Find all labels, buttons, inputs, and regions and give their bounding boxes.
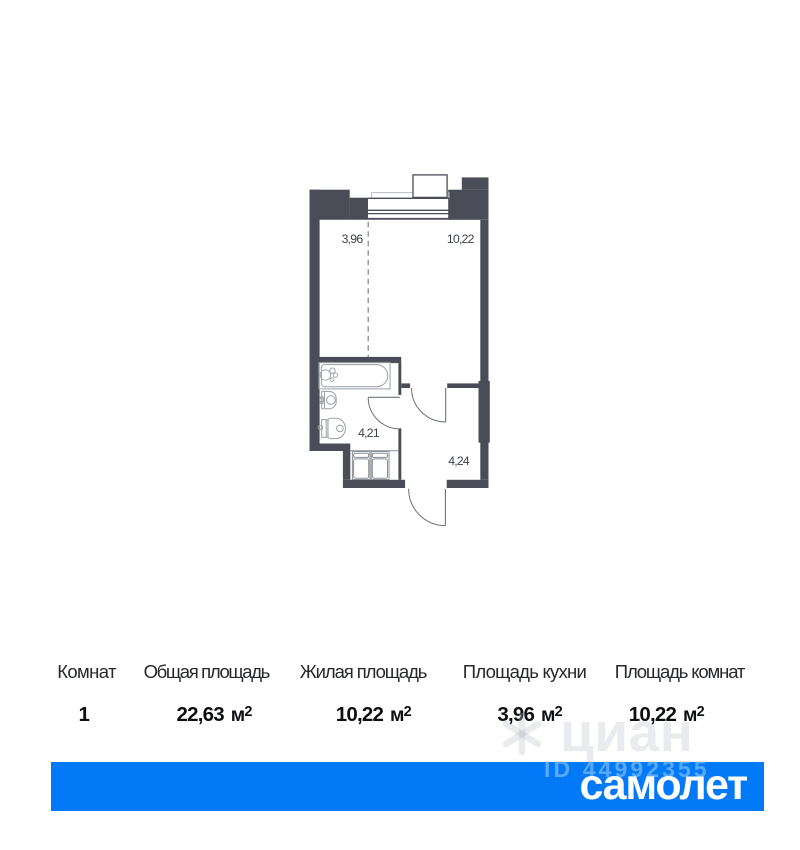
svg-text:самолет: самолет <box>579 761 747 809</box>
